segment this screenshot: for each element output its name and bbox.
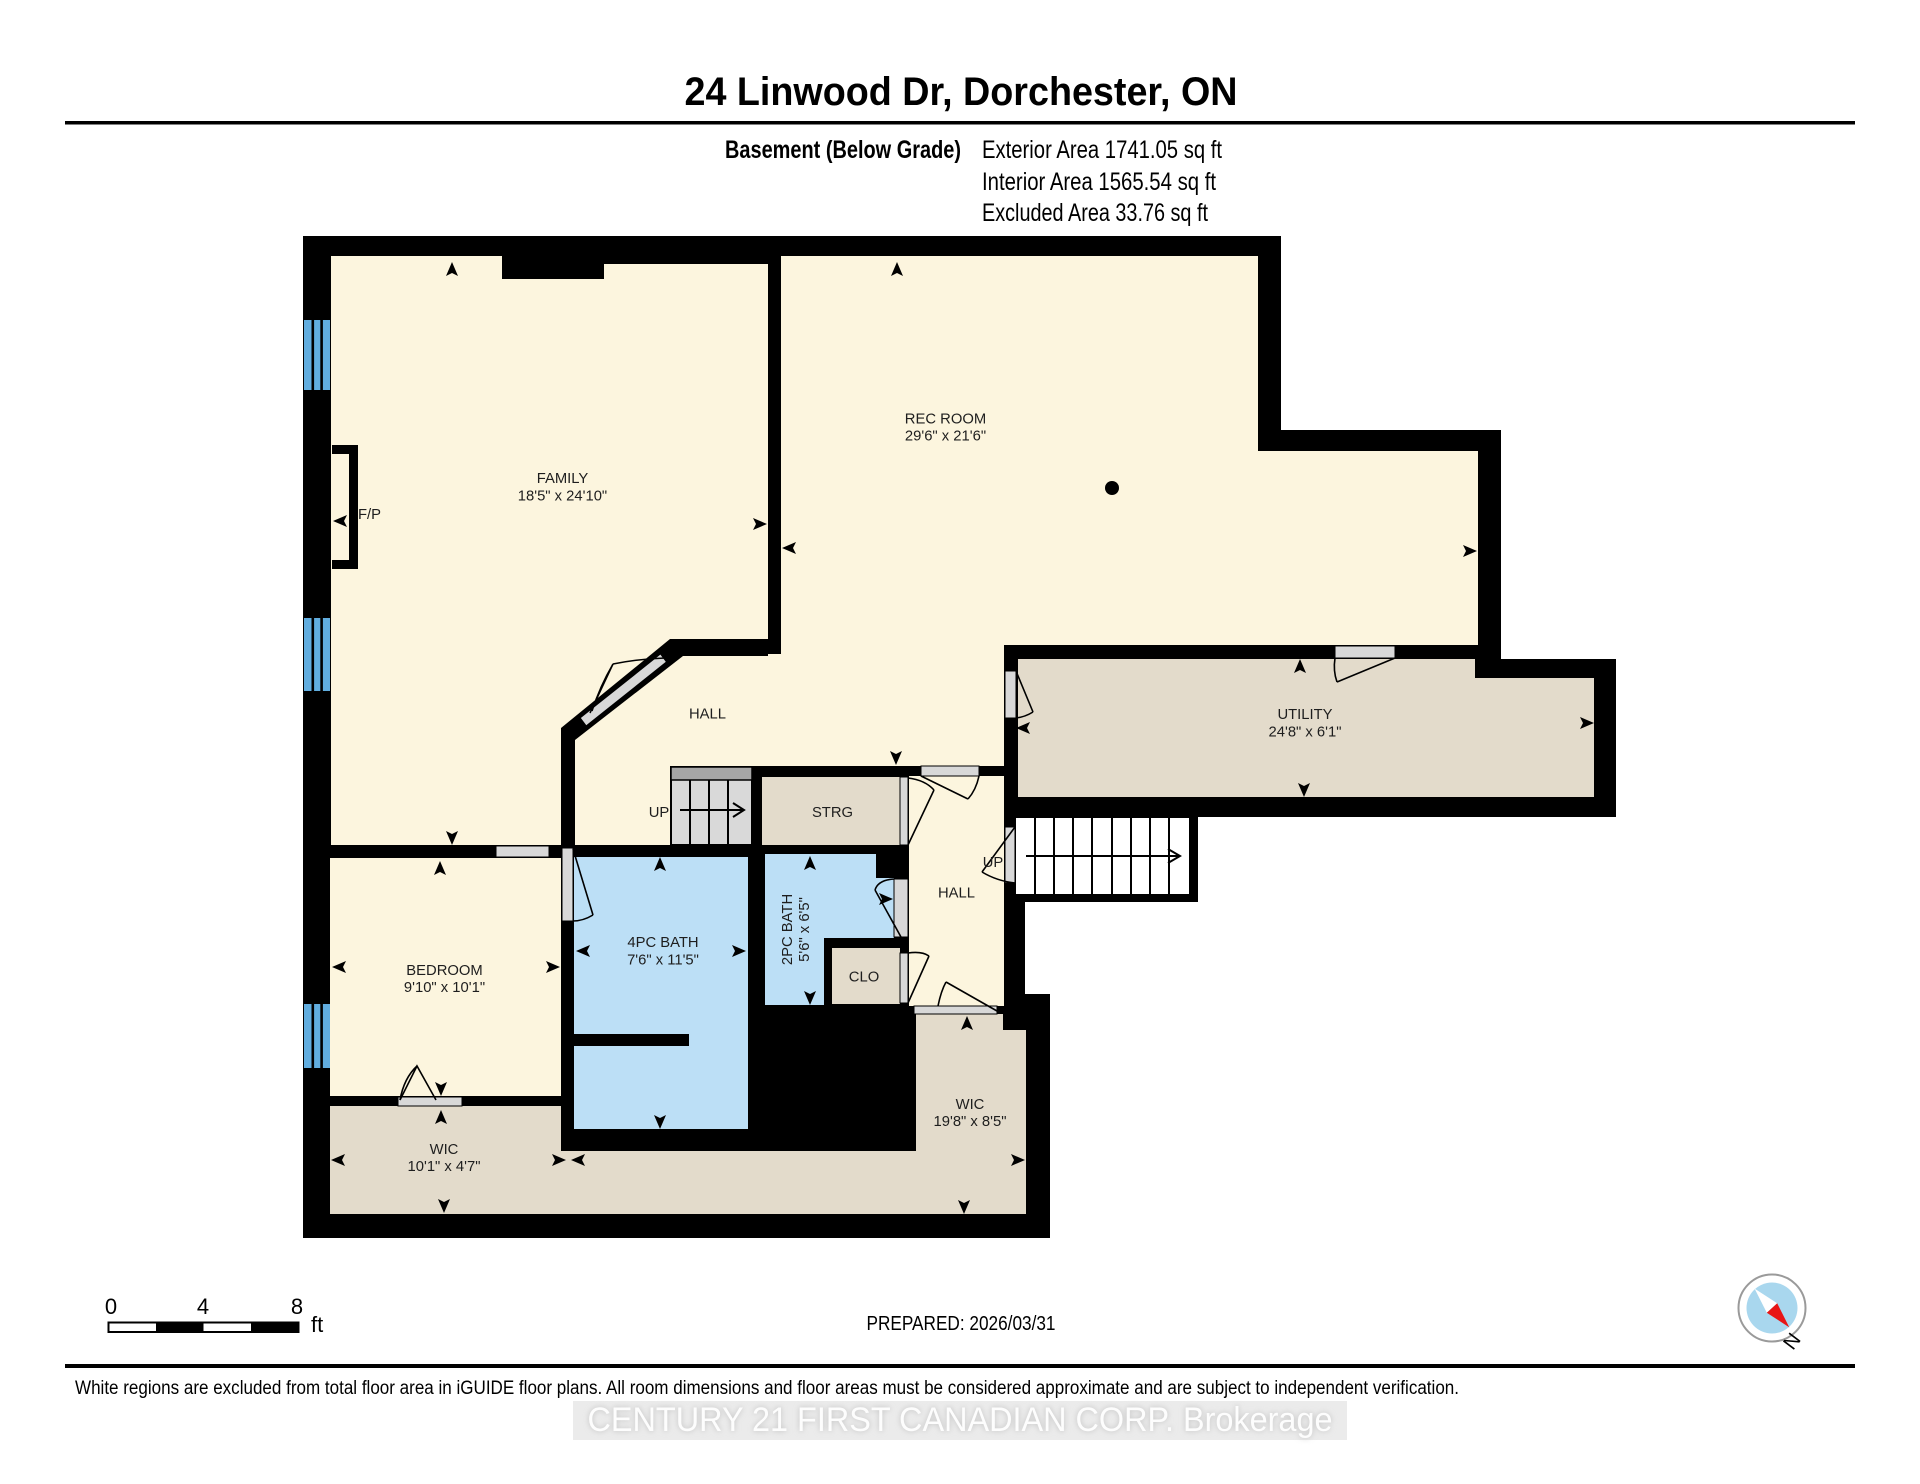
svg-text:0: 0	[105, 1294, 117, 1319]
svg-text:HALL: HALL	[689, 707, 726, 723]
svg-text:9'10" x 10'1": 9'10" x 10'1"	[404, 980, 485, 996]
svg-text:Excluded Area 33.76 sq ft: Excluded Area 33.76 sq ft	[982, 199, 1208, 227]
svg-text:CENTURY 21 FIRST CANADIAN CORP: CENTURY 21 FIRST CANADIAN CORP. Brokerag…	[588, 1401, 1333, 1439]
svg-text:HALL: HALL	[938, 886, 975, 902]
svg-text:PREPARED: 2026/03/31: PREPARED: 2026/03/31	[867, 1313, 1056, 1335]
svg-text:10'1" x 4'7": 10'1" x 4'7"	[408, 1159, 481, 1175]
svg-text:4: 4	[197, 1294, 209, 1319]
svg-text:19'8" x 8'5": 19'8" x 8'5"	[934, 1114, 1007, 1130]
svg-text:ft: ft	[311, 1312, 323, 1337]
svg-text:STRG: STRG	[812, 805, 853, 821]
svg-text:UTILITY: UTILITY	[1277, 707, 1332, 723]
svg-text:CLO: CLO	[849, 970, 879, 986]
svg-text:REC ROOM: REC ROOM	[905, 412, 986, 428]
svg-text:5'6" x 6'5": 5'6" x 6'5"	[797, 897, 813, 962]
svg-text:Interior Area 1565.54 sq ft: Interior Area 1565.54 sq ft	[982, 168, 1216, 196]
svg-text:18'5" x 24'10": 18'5" x 24'10"	[518, 489, 607, 505]
svg-text:FAMILY: FAMILY	[537, 471, 589, 487]
svg-text:Basement (Below Grade): Basement (Below Grade)	[725, 136, 961, 164]
svg-text:WIC: WIC	[956, 1097, 985, 1113]
svg-text:29'6" x 21'6": 29'6" x 21'6"	[905, 429, 986, 445]
svg-text:UP: UP	[983, 855, 1004, 871]
svg-text:2PC BATH: 2PC BATH	[780, 894, 796, 965]
svg-text:4PC BATH: 4PC BATH	[627, 935, 698, 951]
svg-text:7'6" x 11'5": 7'6" x 11'5"	[627, 953, 699, 969]
svg-text:BEDROOM: BEDROOM	[406, 963, 482, 979]
svg-text:Exterior Area 1741.05 sq ft: Exterior Area 1741.05 sq ft	[982, 136, 1222, 164]
svg-text:24'8" x 6'1": 24'8" x 6'1"	[1269, 725, 1342, 741]
svg-text:8: 8	[291, 1294, 303, 1319]
svg-text:WIC: WIC	[430, 1142, 459, 1158]
svg-text:White regions are excluded fro: White regions are excluded from total fl…	[75, 1378, 1459, 1399]
svg-text:F/P: F/P	[358, 507, 381, 523]
svg-text:UP: UP	[649, 805, 670, 821]
svg-text:24 Linwood Dr, Dorchester, ON: 24 Linwood Dr, Dorchester, ON	[685, 70, 1238, 114]
